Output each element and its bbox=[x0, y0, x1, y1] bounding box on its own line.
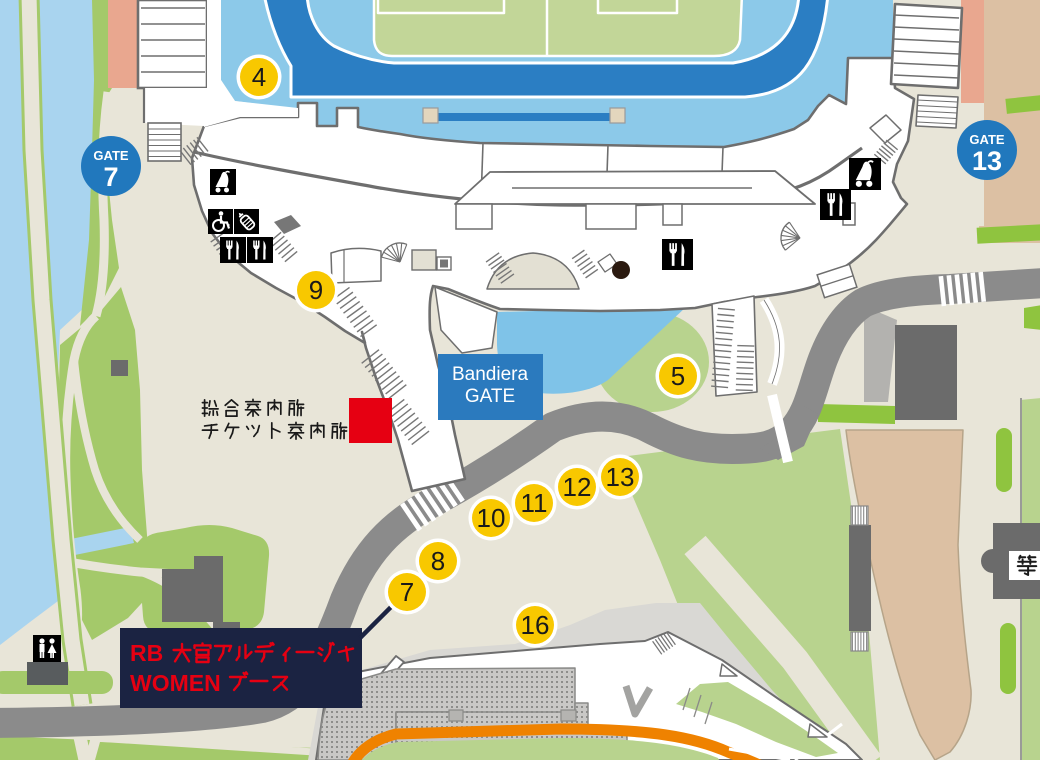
svg-text:7: 7 bbox=[103, 162, 118, 192]
svg-text:GATE: GATE bbox=[93, 148, 128, 163]
svg-text:7: 7 bbox=[400, 577, 414, 607]
svg-text:9: 9 bbox=[309, 275, 323, 305]
svg-text:10: 10 bbox=[477, 503, 506, 533]
svg-text:12: 12 bbox=[563, 472, 592, 502]
svg-text:GATE: GATE bbox=[969, 132, 1004, 147]
svg-text:16: 16 bbox=[521, 610, 550, 640]
svg-text:GATE: GATE bbox=[465, 386, 515, 407]
svg-text:RB: RB bbox=[130, 640, 163, 666]
svg-text:5: 5 bbox=[671, 361, 685, 391]
svg-text:4: 4 bbox=[252, 62, 266, 92]
svg-text:11: 11 bbox=[521, 488, 548, 518]
svg-text:8: 8 bbox=[431, 546, 445, 576]
svg-text:13: 13 bbox=[972, 146, 1002, 176]
svg-text:WOMEN: WOMEN bbox=[130, 670, 221, 696]
svg-text:13: 13 bbox=[606, 462, 635, 492]
svg-text:Bandiera: Bandiera bbox=[452, 364, 528, 385]
